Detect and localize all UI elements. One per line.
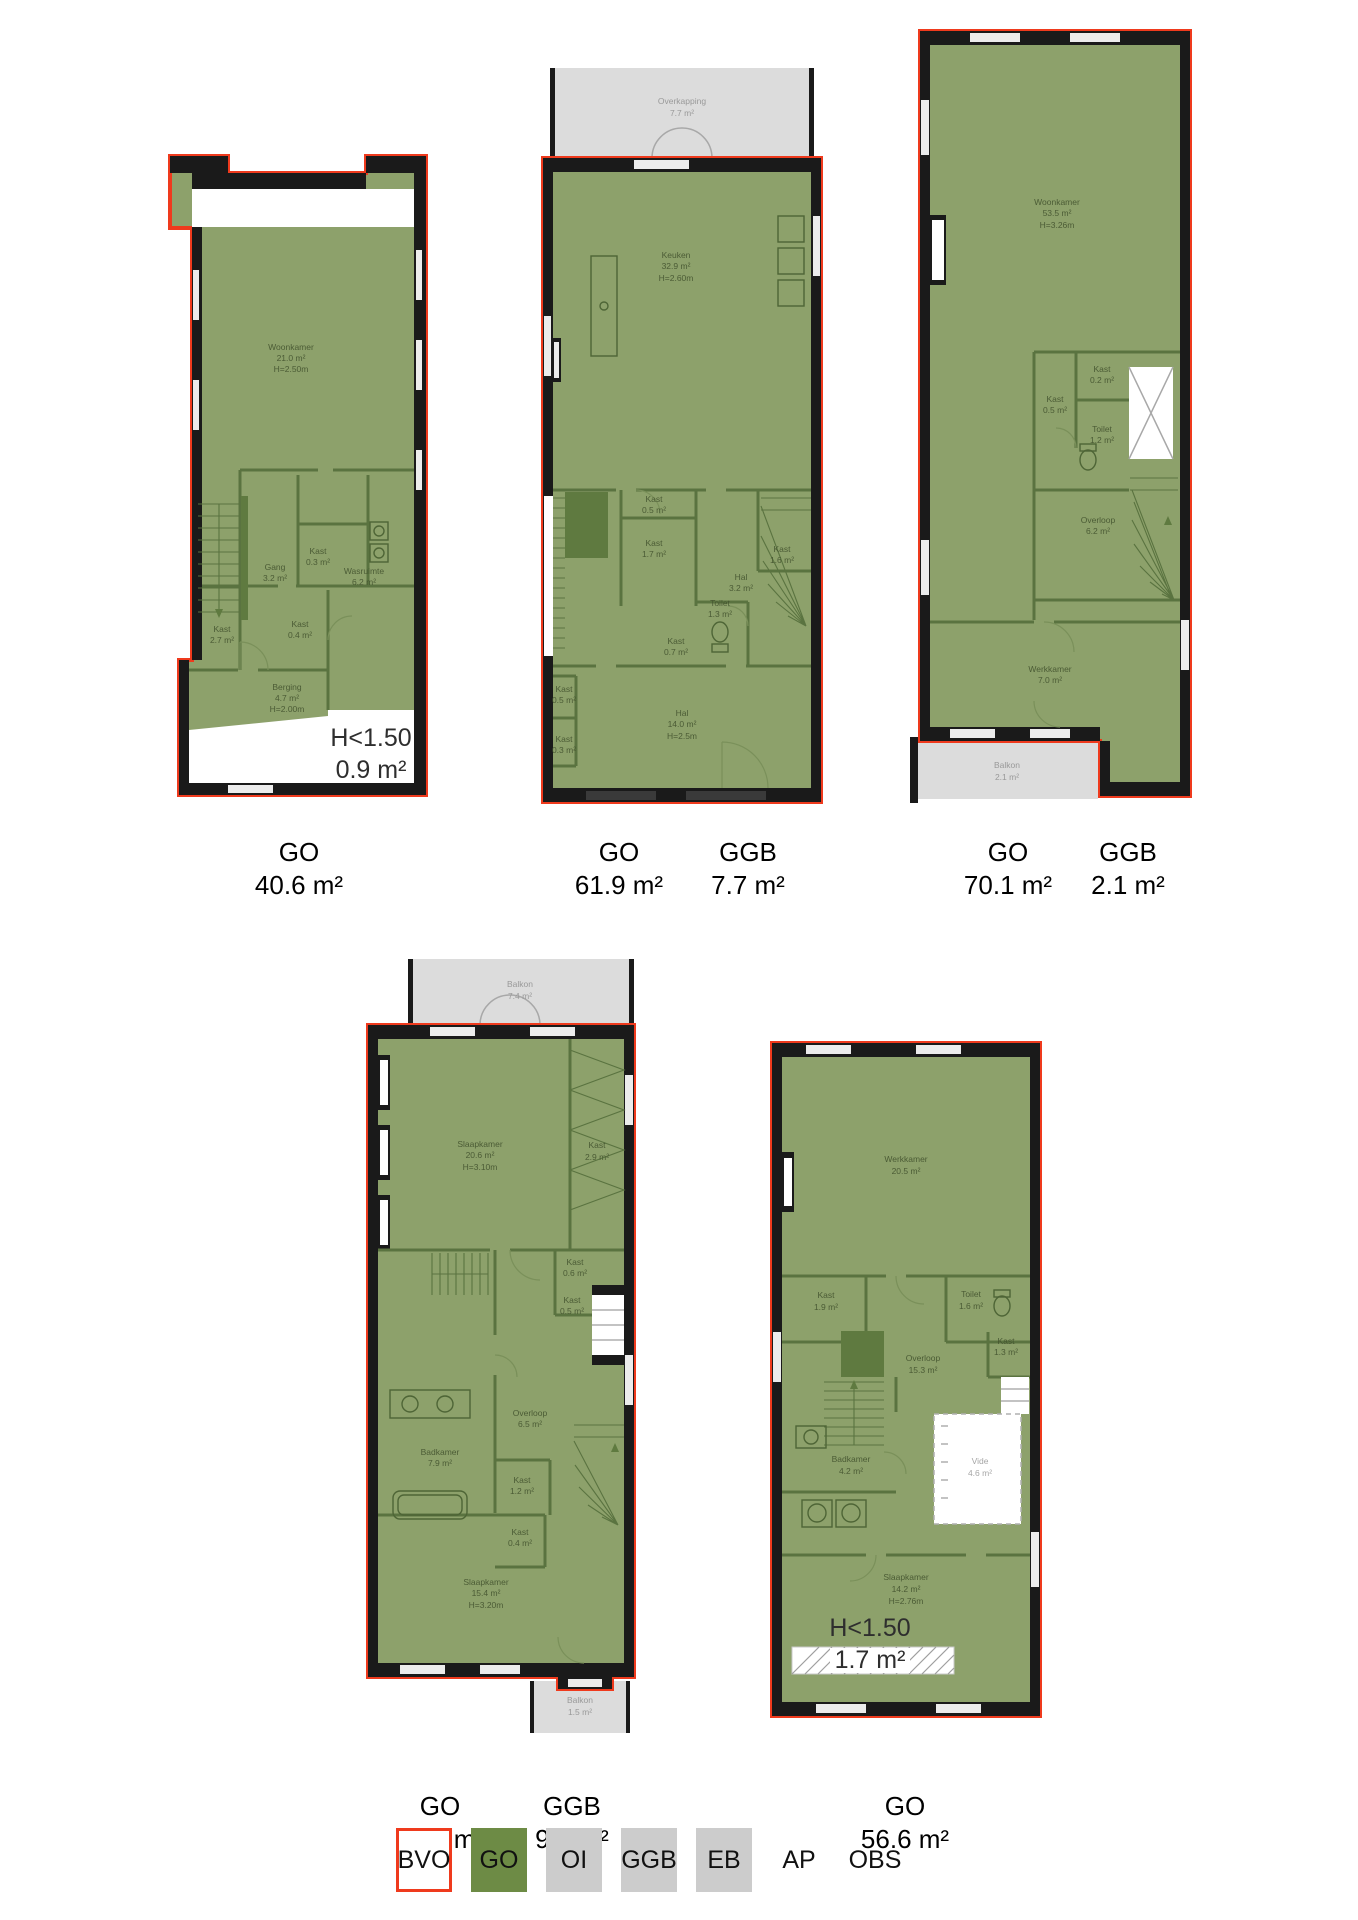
balkon-area: Balkon 2.1 m² [910, 737, 1098, 803]
room-label-name: Toilet [1092, 424, 1112, 434]
room-label-area: 21.0 m² [277, 353, 306, 363]
room-label-name: Badkamer [421, 1447, 460, 1457]
room-label-area: 3.2 m² [729, 583, 753, 593]
room-label-name: Woonkamer [1034, 197, 1080, 207]
metric-plan2-ggb: GGB 7.7 m² [668, 836, 828, 902]
room-label-name: Berging [272, 682, 302, 692]
room-label-name: Kast [645, 538, 663, 548]
metric-label: GGB [492, 1790, 652, 1823]
metric-value: 7.7 m² [668, 869, 828, 902]
metric-value: 2.1 m² [1048, 869, 1208, 902]
room-label-name: Kast [645, 494, 663, 504]
room-label-name: Hal [735, 572, 748, 582]
legend-label: AP [782, 1846, 815, 1875]
outside-label-area: 2.1 m² [995, 772, 1019, 782]
room-label-name: Werkkamer [884, 1154, 927, 1164]
shaft-icon [592, 1285, 624, 1365]
room-label-area: 20.6 m² [466, 1150, 495, 1160]
room-label-area: 1.3 m² [708, 609, 732, 619]
room-label-area: 15.3 m² [909, 1365, 938, 1375]
room-label-height: H=3.26m [1040, 220, 1075, 230]
room-label-name: Kast [513, 1475, 531, 1485]
room-label-area: 0.4 m² [288, 630, 312, 640]
room-label-name: Kast [555, 684, 573, 694]
room-label-name: Kast [773, 544, 791, 554]
room-label-name: Kast [309, 546, 327, 556]
room-label-area: 53.5 m² [1043, 208, 1072, 218]
room-label-name: Kast [1093, 364, 1111, 374]
room-label-area: 0.5 m² [1043, 405, 1067, 415]
room-label-area: 1.7 m² [642, 549, 666, 559]
room-label-height: H=2.00m [270, 704, 305, 714]
legend-label: BVO [398, 1846, 451, 1875]
room-label-area: 0.3 m² [552, 745, 576, 755]
room-label-name: Gang [265, 562, 286, 572]
room-label-name: Kast [1046, 394, 1064, 404]
overkapping-area: Overkapping 7.7 m² [550, 68, 814, 158]
room-label-area: 0.5 m² [552, 695, 576, 705]
legend-swatch-go: GO [471, 1828, 527, 1892]
legend-item-go: GO [471, 1828, 527, 1892]
room-label-name: Badkamer [832, 1454, 871, 1464]
vide-area: Vide 4.6 m² [934, 1414, 1021, 1524]
room-label-height: H=3.10m [463, 1162, 498, 1172]
legend-item-eb: EB [696, 1828, 752, 1892]
floorplan-5: Vide 4.6 m² H<1.50 1.7 m² Werkkamer 20.5… [766, 1032, 1052, 1727]
room-label-name: Woonkamer [268, 342, 314, 352]
annotation-line1: H<1.50 [330, 724, 411, 752]
room-label-area: 1.6 m² [770, 555, 794, 565]
metric-label: GGB [668, 836, 828, 869]
outside-label-name: Balkon [994, 760, 1020, 770]
room-label-area: 0.3 m² [306, 557, 330, 567]
room-label-name: Toilet [710, 598, 730, 608]
room-label-name: Kast [563, 1295, 581, 1305]
room-label-name: Kast [588, 1140, 606, 1150]
room-label-area: 15.4 m² [472, 1588, 501, 1598]
outside-label-area: 7.4 m² [508, 991, 532, 1001]
room-label-name: Toilet [961, 1289, 981, 1299]
room-label-name: Hal [676, 708, 689, 718]
legend-item-ap: AP [764, 1828, 834, 1892]
room-label-area: 32.9 m² [662, 261, 691, 271]
room-label-area: 20.5 m² [892, 1166, 921, 1176]
outside-label-name: Overkapping [658, 96, 706, 106]
floorplan-4: Balkon 7.4 m² Balkon 1.5 m² [360, 955, 644, 1745]
legend-swatch-eb: EB [696, 1828, 752, 1892]
room-label-area: 6.5 m² [518, 1419, 542, 1429]
room-label-area: 1.2 m² [1090, 435, 1114, 445]
room-label-name: Kast [817, 1290, 835, 1300]
metric-label: GO [219, 836, 379, 869]
room-label-name: Kast [566, 1257, 584, 1267]
room-label-height: H=2.5m [667, 731, 697, 741]
room-label-area: 0.2 m² [1090, 375, 1114, 385]
room-label-name: Slaapkamer [883, 1572, 929, 1582]
metric-label: GGB [1048, 836, 1208, 869]
legend-label: GGB [621, 1846, 677, 1875]
room-label-name: Wasruimte [344, 566, 385, 576]
room-label-height: H=2.60m [659, 273, 694, 283]
legend-label: GO [480, 1846, 519, 1875]
room-label-area: 14.0 m² [668, 719, 697, 729]
room-label-area: 1.2 m² [510, 1486, 534, 1496]
room-label-area: 1.9 m² [814, 1302, 838, 1312]
outside-label-area: 7.7 m² [670, 108, 694, 118]
room-label-height: H=2.76m [889, 1596, 924, 1606]
room-label-area: 6.2 m² [352, 577, 376, 587]
legend-swatch-ggb: GGB [621, 1828, 677, 1892]
legend-swatch-ap: AP [764, 1828, 834, 1892]
room-label-area: 0.4 m² [508, 1538, 532, 1548]
legend-item-bvo: BVO [396, 1828, 452, 1892]
outside-label-area: 1.5 m² [568, 1707, 592, 1717]
floorplan-1: Woonkamer 21.0 m² H=2.50m Gang 3.2 m² Ka… [168, 150, 432, 814]
legend-item-obs: OBS [840, 1828, 910, 1892]
floorplan-sheet: Woonkamer 21.0 m² H=2.50m Gang 3.2 m² Ka… [0, 0, 1358, 1920]
room-label-name: Werkkamer [1028, 664, 1071, 674]
room-label-name: Kast [667, 636, 685, 646]
room-label-area: 0.7 m² [664, 647, 688, 657]
outside-label-name: Balkon [507, 979, 533, 989]
legend-swatch-obs: OBS [840, 1828, 910, 1892]
room-label-name: Overloop [906, 1353, 941, 1363]
metric-label: GO [825, 1790, 985, 1823]
legend-item-oi: OI [546, 1828, 602, 1892]
room-label-height: H=3.20m [469, 1600, 504, 1610]
metric-plan1-go: GO 40.6 m² [219, 836, 379, 902]
legend-item-ggb: GGB [621, 1828, 677, 1892]
legend-label: EB [707, 1846, 740, 1875]
room-label-area: 0.6 m² [563, 1268, 587, 1278]
room-label-name: Overloop [513, 1408, 548, 1418]
room-label-area: 4.6 m² [968, 1468, 992, 1478]
legend-swatch-bvo: BVO [396, 1828, 452, 1892]
room-label-area: 3.2 m² [263, 573, 287, 583]
room-label-name: Kast [997, 1336, 1015, 1346]
outside-label-name: Balkon [567, 1695, 593, 1705]
metric-value: 40.6 m² [219, 869, 379, 902]
room-label-area: 0.5 m² [642, 505, 666, 515]
legend-swatch-oi: OI [546, 1828, 602, 1892]
room-label-name: Kast [291, 619, 309, 629]
shaft-icon [1129, 367, 1173, 459]
room-label-name: Vide [972, 1456, 989, 1466]
annotation-line2: 1.7 m² [835, 1646, 906, 1674]
balkon-top-area: Balkon 7.4 m² [408, 959, 634, 1025]
room-label-area: 14.2 m² [892, 1584, 921, 1594]
room-label-name: Slaapkamer [463, 1577, 509, 1587]
room-label-height: H=2.50m [274, 364, 309, 374]
room-label-area: 4.7 m² [275, 693, 299, 703]
room-label-area: 1.6 m² [959, 1301, 983, 1311]
room-label-name: Kast [511, 1527, 529, 1537]
annotation-line2: 0.9 m² [336, 756, 407, 784]
room-label-area: 2.7 m² [210, 635, 234, 645]
floorplan-3: Balkon 2.1 m² [910, 20, 1198, 808]
room-label-name: Overloop [1081, 515, 1116, 525]
room-label-area: 1.3 m² [994, 1347, 1018, 1357]
room-label-name: Slaapkamer [457, 1139, 503, 1149]
metric-plan3-ggb: GGB 2.1 m² [1048, 836, 1208, 902]
annotation-line1: H<1.50 [829, 1614, 910, 1642]
room-label-area: 4.2 m² [839, 1466, 863, 1476]
room-label-area: 7.9 m² [428, 1458, 452, 1468]
legend-label: OI [561, 1846, 587, 1875]
room-label-name: Keuken [662, 250, 691, 260]
shaft-icon [1001, 1377, 1029, 1414]
floorplan-2: Overkapping 7.7 m² [536, 66, 828, 814]
room-label-name: Kast [555, 734, 573, 744]
room-label-area: 6.2 m² [1086, 526, 1110, 536]
room-label-area: 7.0 m² [1038, 675, 1062, 685]
room-label-name: Kast [213, 624, 231, 634]
room-label-area: 2.9 m² [585, 1152, 609, 1162]
legend-label: OBS [849, 1846, 902, 1875]
room-label-area: 0.5 m² [560, 1306, 584, 1316]
